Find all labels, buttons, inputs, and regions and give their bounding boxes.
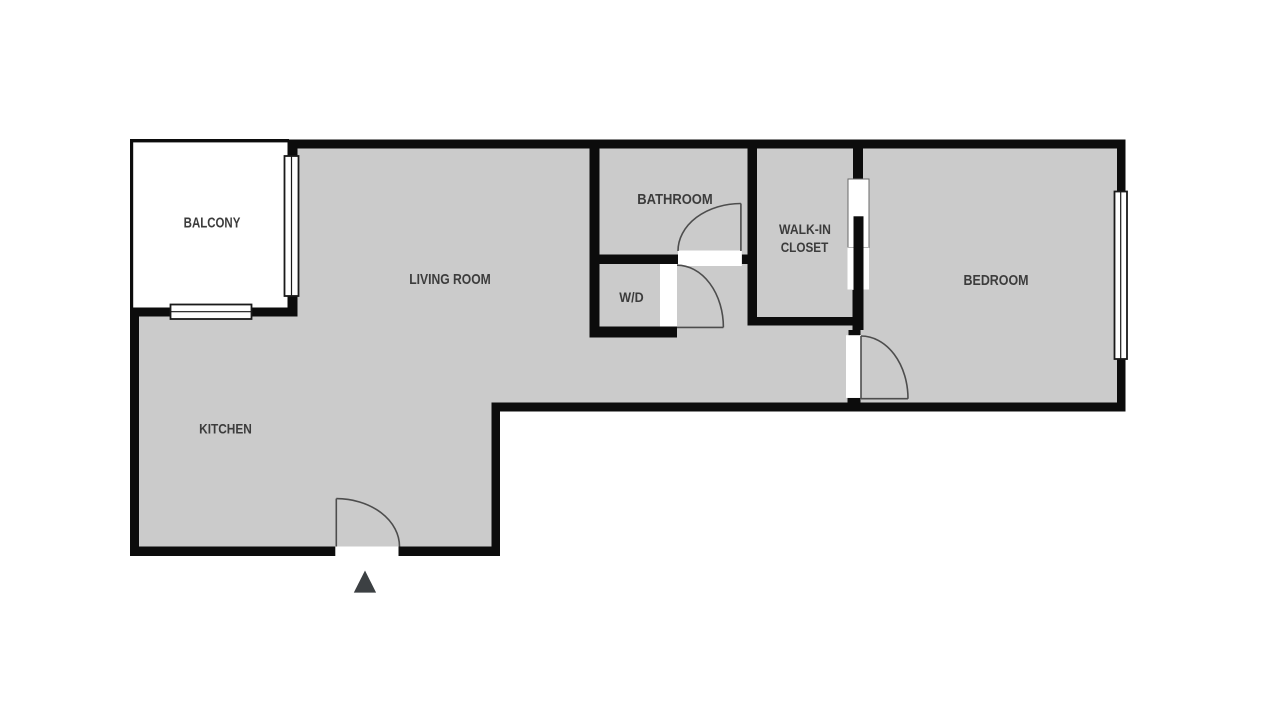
svg-text:WALK-IN: WALK-IN [779, 221, 831, 237]
svg-text:BATHROOM: BATHROOM [637, 190, 712, 207]
svg-text:CLOSET: CLOSET [781, 240, 829, 255]
svg-text:W/D: W/D [619, 289, 643, 305]
svg-text:BALCONY: BALCONY [184, 214, 241, 231]
svg-text:BEDROOM: BEDROOM [964, 272, 1029, 288]
svg-text:KITCHEN: KITCHEN [199, 421, 252, 437]
svg-text:LIVING ROOM: LIVING ROOM [409, 271, 491, 287]
